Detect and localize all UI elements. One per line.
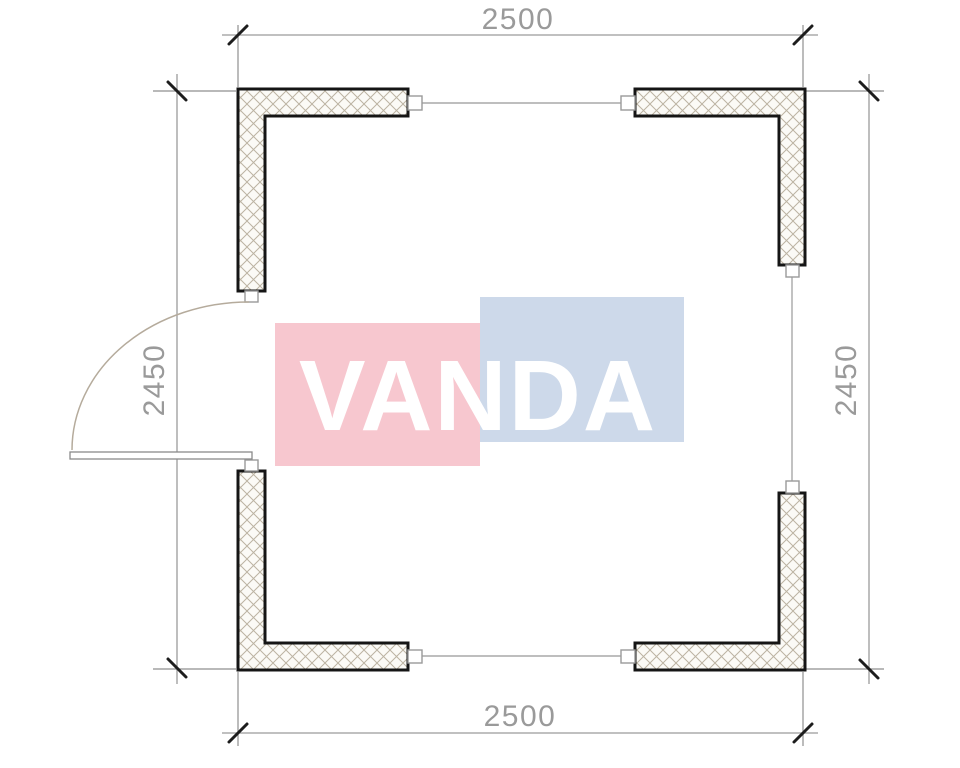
dimension-label-left: 2450 [138, 344, 171, 417]
dimension-label-top: 2500 [482, 3, 555, 36]
wall-connector [621, 650, 635, 663]
wall-connector [245, 460, 258, 471]
door-leaf [70, 452, 252, 459]
dimension-right: 2450 [806, 74, 884, 684]
watermark: VANDA [275, 297, 684, 466]
dimension-top: 2500 [222, 3, 818, 87]
wall-connector [245, 291, 258, 302]
watermark-text: VANDA [299, 340, 657, 452]
wall-top-right [635, 89, 805, 265]
wall-bottom-right [635, 493, 805, 670]
wall-connector [786, 481, 799, 493]
dimension-bottom: 2500 [222, 672, 818, 746]
dimension-label-bottom: 2500 [484, 700, 557, 733]
dimension-left: 2450 [138, 74, 236, 684]
wall-bottom-left [238, 471, 408, 670]
dimension-label-right: 2450 [830, 344, 863, 417]
wall-connector [408, 650, 422, 663]
wall-connector [621, 96, 635, 110]
wall-connector [408, 96, 422, 110]
wall-top-left [238, 89, 408, 291]
wall-connector [786, 265, 799, 277]
floor-plan-page: 2500 2500 2450 2450 [0, 0, 960, 768]
floor-plan-canvas: 2500 2500 2450 2450 [0, 0, 960, 768]
